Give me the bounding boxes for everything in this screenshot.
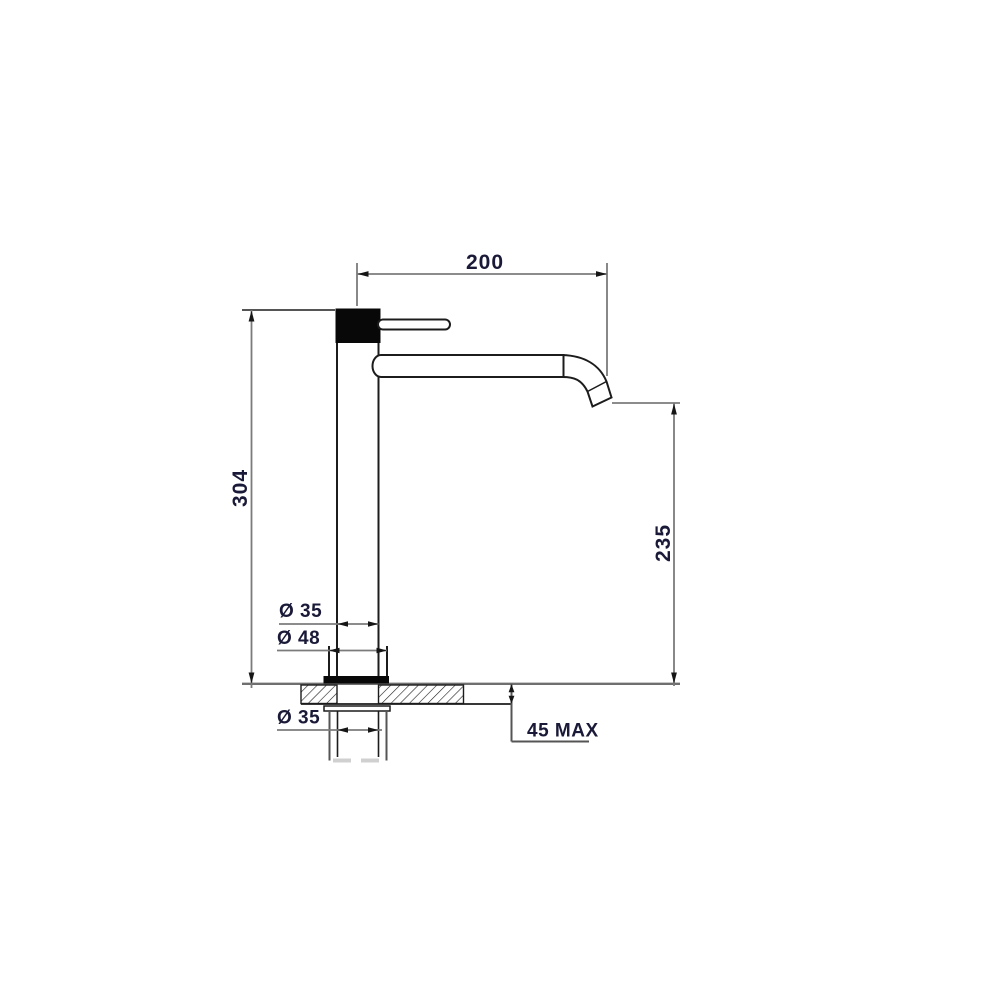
- dimension-label: 235: [652, 524, 675, 562]
- arrowhead-left: [358, 271, 369, 277]
- faucet-dimension-drawing: 200 304 235 Ø 35 Ø 48 Ø 35: [0, 0, 1000, 1000]
- spout-body: [373, 355, 612, 407]
- handle-lever: [378, 320, 450, 330]
- faucet-outline: [324, 309, 612, 684]
- dim-max-counter-thickness: 45 MAX: [509, 684, 599, 742]
- arrowhead-down: [509, 696, 515, 704]
- arrowhead-right: [368, 621, 379, 627]
- dimension-label: Ø 35: [277, 708, 320, 729]
- dimension-label: Ø 48: [277, 628, 320, 649]
- arrowhead-right: [377, 648, 388, 654]
- dimension-label: 200: [466, 251, 504, 274]
- countertop-hatch-left: [301, 685, 337, 704]
- arrowhead-bottom: [671, 673, 677, 684]
- arrowhead-top: [671, 404, 677, 415]
- mounting-washer: [324, 706, 390, 711]
- arrowhead-left: [338, 621, 349, 627]
- dimension-label: Ø 35: [279, 601, 322, 622]
- arrowhead-top: [249, 311, 255, 322]
- arrowhead-right: [368, 727, 379, 733]
- arrowhead-up: [509, 684, 515, 692]
- dim-outlet-height: 235: [612, 403, 680, 686]
- handle-cartridge-block: [336, 309, 381, 344]
- dim-base-diameter: Ø 48: [277, 628, 387, 653]
- countertop-hatch-right: [379, 685, 464, 704]
- dim-body-diameter: Ø 35: [279, 601, 379, 627]
- countertop-section: [242, 684, 680, 704]
- dimension-label: 45 MAX: [527, 721, 599, 742]
- arrowhead-right: [596, 271, 607, 277]
- arrowhead-left: [338, 727, 349, 733]
- mounting-shank: [324, 706, 390, 761]
- technical-drawing-page: 200 304 235 Ø 35 Ø 48 Ø 35: [0, 0, 1000, 1000]
- dimension-label: 304: [229, 469, 252, 507]
- arrowhead-bottom: [249, 673, 255, 684]
- arrowhead-left: [329, 648, 340, 654]
- base-gasket: [324, 676, 390, 684]
